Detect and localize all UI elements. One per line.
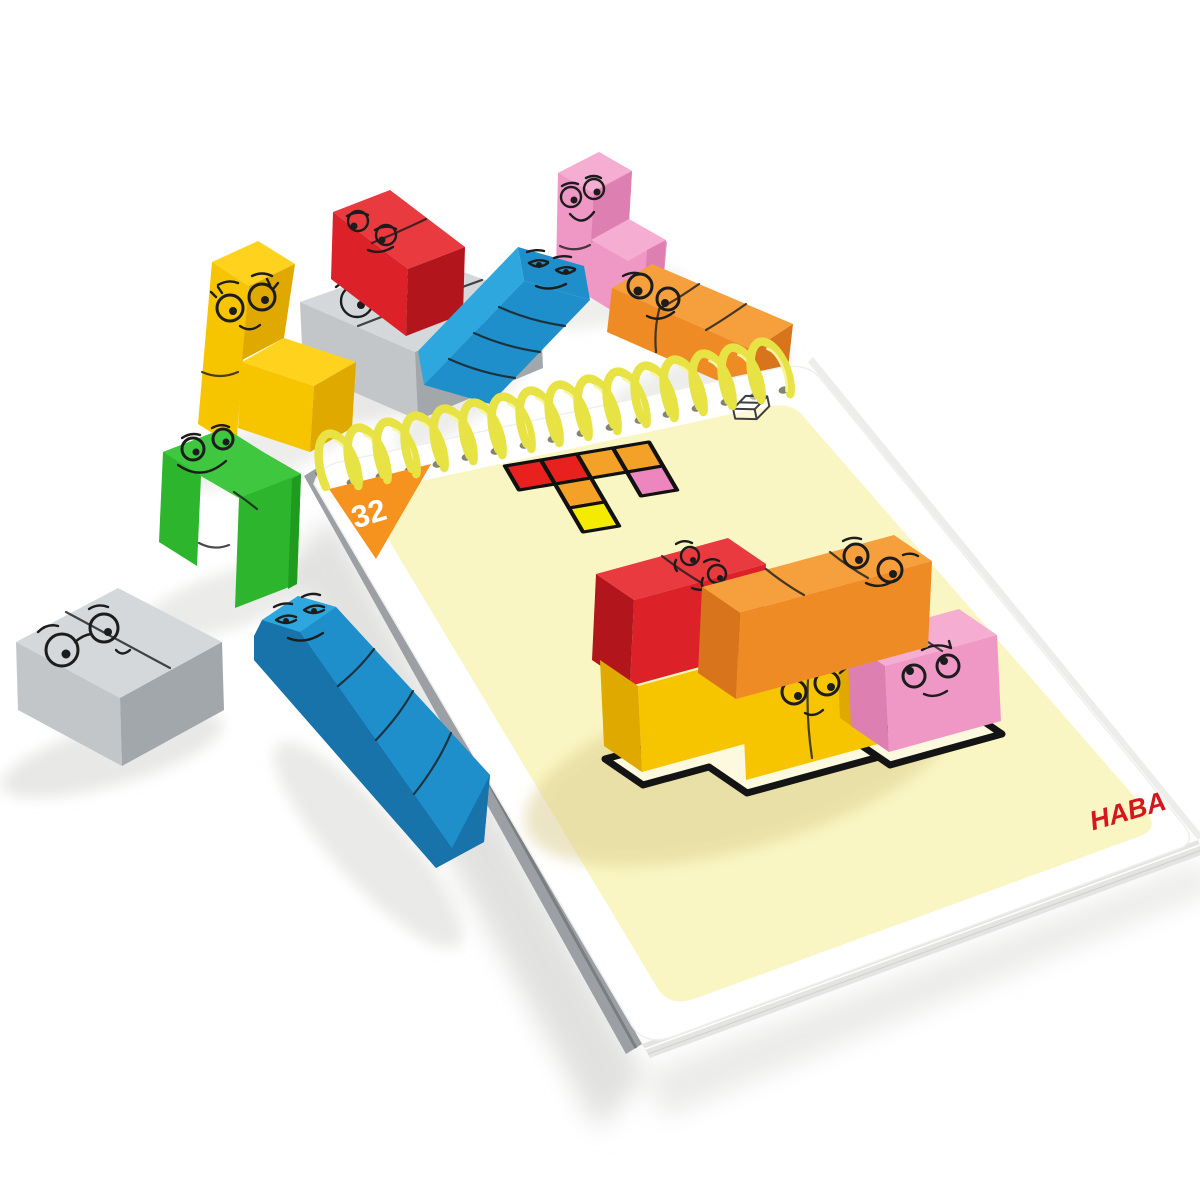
scene-canvas: 32 HABA: [0, 0, 1200, 1200]
product-photo: 32 HABA: [0, 0, 1200, 1200]
